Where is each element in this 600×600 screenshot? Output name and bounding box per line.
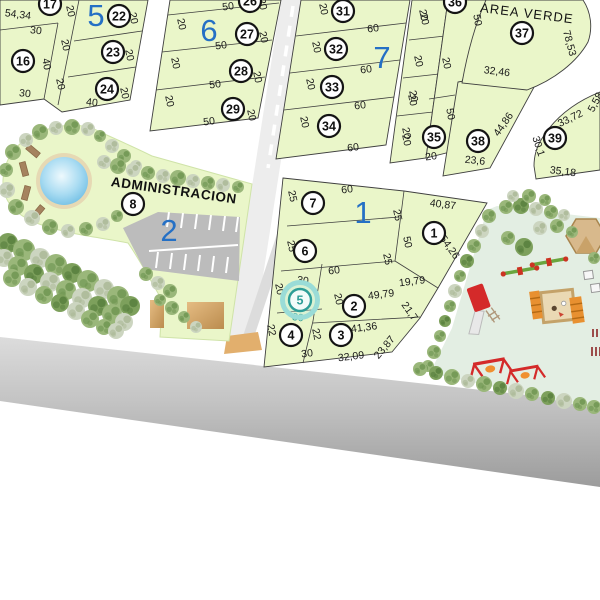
tree-icon [427,345,441,359]
tree-icon [81,122,95,136]
subdivision-site-plan: 54,3420203020204020203040502020205020205… [0,0,600,600]
lot-17-marker[interactable]: 17 [39,0,61,15]
lot-8-marker[interactable]: 8 [122,193,144,215]
tree-icon [573,397,587,411]
tree-icon [444,300,456,312]
lot-16-marker[interactable]: 16 [12,50,34,72]
lot-34-marker[interactable]: 34 [318,115,340,137]
lot-24-marker[interactable]: 24 [96,78,118,100]
tree-icon [32,124,48,140]
pool [40,157,88,205]
tree-icon [61,224,75,238]
tree-icon [5,144,21,160]
dimension-label: 40 [39,57,53,71]
lot-number: 36 [448,0,462,10]
tree-icon [501,231,515,245]
lot-number: 23 [106,46,120,60]
tree-icon [434,330,446,342]
lot-3-marker[interactable]: 3 [330,324,352,346]
dimension-label: 30 [29,24,42,37]
lot-number: 3 [338,329,345,343]
lot-22-marker[interactable]: 22 [108,5,130,27]
tree-icon [94,130,106,142]
tree-icon [19,278,37,296]
dimension-label: 60 [347,141,360,154]
tree-icon [429,366,443,380]
lot-number: 31 [336,5,350,19]
lot-number: 24 [100,83,114,97]
lot-number: 39 [548,132,562,146]
lot-29-marker[interactable]: 29 [222,98,244,120]
lot-27-marker[interactable]: 27 [236,23,258,45]
lot-number: 8 [130,198,137,212]
tree-icon [96,217,110,231]
tree-icon [522,189,536,203]
tree-icon [151,276,165,290]
lot-6-marker[interactable]: 6 [294,240,316,262]
dimension-label: 20 [425,150,438,163]
tree-icon [588,252,600,264]
lot-number: 1 [431,227,438,241]
tree-icon [413,362,427,376]
dimension-label: 40 [85,96,98,109]
site-plan-canvas: 54,3420203020204020203040502020205020205… [0,0,600,600]
lot-37-marker[interactable]: 37 [511,22,533,44]
lot-number: 5 [297,294,304,308]
lot-number: 29 [226,103,240,117]
lot-31-marker[interactable]: 31 [332,0,354,22]
tree-icon [515,238,533,256]
lot-33-marker[interactable]: 33 [321,76,343,98]
tree-icon [108,323,124,339]
tree-icon [461,374,475,388]
dimension-label: 60 [328,264,341,277]
tree-icon [499,200,513,214]
tree-icon [558,209,570,221]
lot-number: 37 [515,27,529,41]
dimension-label: 50 [203,115,216,128]
tree-icon [467,239,481,253]
tree-icon [120,296,140,316]
tree-icon [508,383,524,399]
lot-23-marker[interactable]: 23 [102,41,124,63]
tree-icon [541,391,555,405]
dimension-label: 50 [443,107,457,121]
tree-icon [444,369,460,385]
tree-icon [190,321,202,333]
tree-icon [49,121,63,135]
tree-icon [24,210,40,226]
block-1-number: 1 [354,195,371,230]
block-5-number: 5 [87,0,104,33]
lot-number: 33 [325,81,339,95]
tree-icon [178,311,190,323]
lot-number: 17 [43,0,57,12]
dimension-label: 60 [367,22,380,35]
dimension-label: 60 [354,99,367,112]
block-7-number: 7 [373,40,390,75]
tree-icon [51,294,69,312]
lot-number: 34 [322,120,336,134]
tree-icon [482,209,496,223]
tree-icon [64,119,80,135]
tree-icon [111,210,123,222]
lot-4-marker[interactable]: 4 [280,324,302,346]
lot-26-marker[interactable]: 26 [239,0,261,12]
tree-icon [493,381,507,395]
lot-35-marker[interactable]: 35 [423,126,445,148]
lot-1-marker[interactable]: 1 [423,222,445,244]
lot-number: 27 [240,28,254,42]
tree-icon [8,199,24,215]
dimension-label: 50 [222,0,235,13]
tree-icon [165,301,179,315]
dimension-label: 50 [470,13,484,27]
dimension-label: 30 [301,347,314,360]
tree-icon [544,205,558,219]
dimension-label: 30 [18,87,31,100]
tree-icon [454,270,466,282]
lot-38-marker[interactable]: 38 [467,130,489,152]
block-6-number: 6 [200,13,217,48]
tree-icon [550,219,564,233]
lot-39-marker[interactable]: 39 [544,127,566,149]
block-2-number: 2 [160,213,177,248]
tree-icon [475,224,489,238]
tree-icon [139,267,153,281]
lot-32-marker[interactable]: 32 [325,38,347,60]
lot-5-marker[interactable]: 5 [283,283,318,318]
tree-icon [35,286,53,304]
tree-icon [79,222,93,236]
tree-icon [105,139,119,153]
lot-number: 35 [427,131,441,145]
lot-number: 32 [329,43,343,57]
lot-number: 28 [234,65,248,79]
lot-number: 6 [302,245,309,259]
tree-icon [3,269,21,287]
tree-icon [126,163,140,177]
tree-icon [97,155,111,169]
tree-icon [533,221,547,235]
lot-number: 16 [16,55,30,69]
tree-icon [448,284,462,298]
lot-7-marker[interactable]: 7 [302,192,324,214]
dimension-label: 60 [360,63,373,76]
tree-icon [439,315,451,327]
tree-icon [42,219,58,235]
tree-icon [507,190,519,202]
dimension-label: 60 [341,183,354,196]
dimension-label: 23,6 [464,154,486,168]
lot-number: 2 [351,300,358,314]
tree-icon [163,284,177,298]
lot-number: 26 [243,0,257,9]
tree-icon [476,376,492,392]
dimension-label: 50 [209,78,222,91]
tree-icon [539,194,551,206]
lot-2-marker[interactable]: 2 [343,295,365,317]
tree-icon [556,393,572,409]
tree-icon [154,294,166,306]
tree-icon [460,254,474,268]
tree-icon [566,226,578,238]
lot-28-marker[interactable]: 28 [230,60,252,82]
tree-icon [19,133,33,147]
lot-36-marker[interactable]: 36 [444,0,466,13]
tree-icon [525,387,539,401]
sandbox [541,289,576,322]
lot-number: 22 [112,10,126,24]
lot-number: 7 [310,197,317,211]
lot-number: 38 [471,135,485,149]
tree-icon [110,158,126,174]
lot-number: 4 [288,329,295,343]
